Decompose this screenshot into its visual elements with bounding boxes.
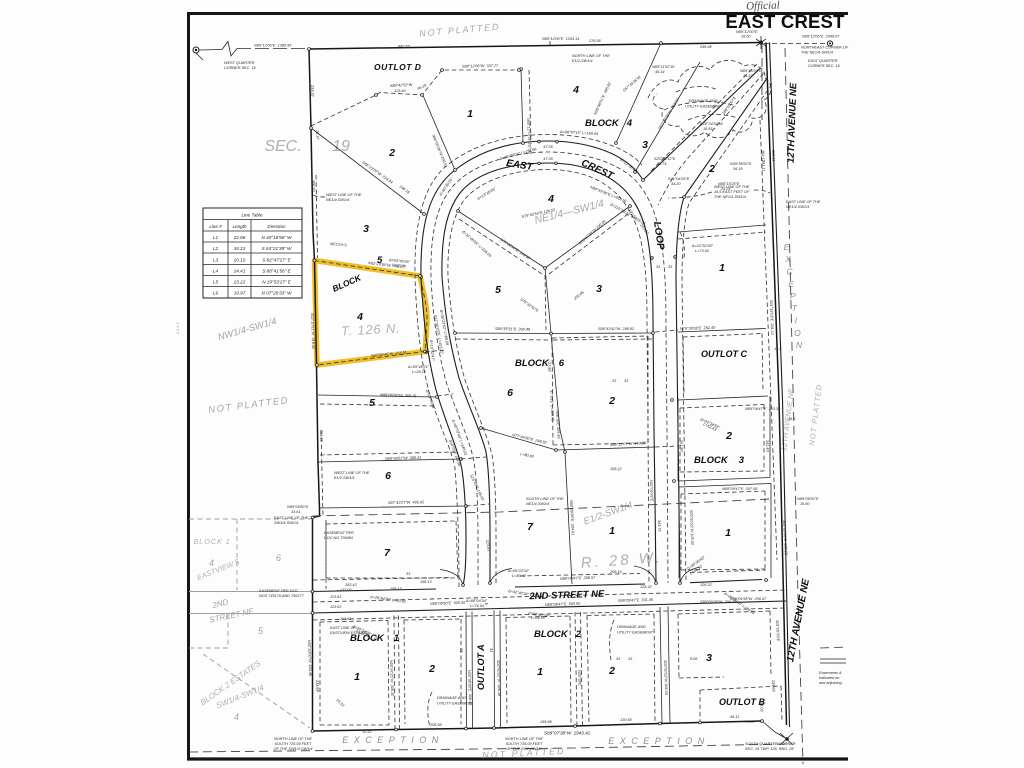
svg-text:6: 6 bbox=[276, 553, 281, 563]
svg-text:343.75: 343.75 bbox=[657, 520, 661, 533]
svg-text:Δ=12°52'40": Δ=12°52'40" bbox=[691, 244, 714, 248]
svg-text:EASEMENT PER DOC: EASEMENT PER DOC bbox=[259, 589, 298, 593]
svg-text:1: 1 bbox=[537, 666, 543, 678]
svg-text:Length: Length bbox=[232, 224, 246, 229]
svg-text:27.88: 27.88 bbox=[547, 361, 551, 373]
svg-text:BLOCK 1: BLOCK 1 bbox=[193, 537, 230, 546]
svg-text:4: 4 bbox=[234, 712, 239, 722]
svg-text:S 88°41'56" E: S 88°41'56" E bbox=[262, 269, 291, 274]
svg-text:134.03: 134.03 bbox=[759, 700, 764, 713]
svg-text:L=24.80: L=24.80 bbox=[531, 616, 546, 620]
svg-text:E: E bbox=[784, 242, 790, 252]
svg-text:E1/2-SW1/4: E1/2-SW1/4 bbox=[334, 476, 354, 480]
svg-text:N89°09'50"E: N89°09'50"E bbox=[797, 497, 819, 501]
svg-text:EXCEPTION: EXCEPTION bbox=[342, 735, 444, 745]
svg-text:L5: L5 bbox=[213, 280, 219, 285]
svg-text:CORNER SEC. 19: CORNER SEC. 19 bbox=[808, 64, 841, 68]
svg-text:N89°15'25"E: N89°15'25"E bbox=[718, 182, 740, 186]
svg-text:2: 2 bbox=[608, 665, 615, 677]
svg-text:DRAINAGE AND: DRAINAGE AND bbox=[437, 696, 466, 700]
svg-text:126.32: 126.32 bbox=[700, 583, 713, 587]
svg-text:2: 2 bbox=[725, 430, 732, 442]
svg-text:N89°12'06"E 2646.07: N89°12'06"E 2646.07 bbox=[802, 35, 840, 39]
svg-text:N89°09'47"E 207.08: N89°09'47"E 207.08 bbox=[722, 487, 758, 491]
svg-text:1: 1 bbox=[467, 108, 473, 120]
svg-text:20.10: 20.10 bbox=[233, 258, 246, 263]
svg-text:L6: L6 bbox=[213, 291, 219, 296]
svg-text:4: 4 bbox=[209, 558, 214, 568]
svg-text:16.5 EAST FEET OF: 16.5 EAST FEET OF bbox=[714, 190, 750, 194]
svg-text:22.86: 22.86 bbox=[233, 235, 246, 240]
svg-text:130.55: 130.55 bbox=[620, 718, 633, 722]
svg-text:EAST LINE OF THE: EAST LINE OF THE bbox=[786, 200, 821, 204]
svg-text:45.11: 45.11 bbox=[730, 715, 739, 719]
svg-text:44.20: 44.20 bbox=[671, 182, 681, 186]
svg-text:S89°12'06"W 337.77: S89°12'06"W 337.77 bbox=[462, 64, 499, 69]
svg-text:5: 5 bbox=[495, 284, 501, 296]
svg-text:198.13: 198.13 bbox=[420, 580, 433, 584]
svg-text:L3: L3 bbox=[213, 258, 219, 263]
svg-text:S20°25'12"E: S20°25'12"E bbox=[654, 157, 676, 161]
svg-text:Δ=09°48'21": Δ=09°48'21" bbox=[407, 365, 430, 369]
svg-text:241.43: 241.43 bbox=[765, 439, 769, 453]
svg-text:268.11: 268.11 bbox=[771, 149, 775, 161]
svg-text:21.45: 21.45 bbox=[367, 637, 378, 641]
svg-text:N89°12'06"E 1385.95: N89°12'06"E 1385.95 bbox=[254, 44, 292, 48]
svg-text:N89°12'00"E: N89°12'00"E bbox=[736, 30, 758, 34]
svg-text:EAST CREST: EAST CREST bbox=[725, 11, 845, 32]
svg-text:DRAINAGE AND: DRAINAGE AND bbox=[617, 625, 646, 629]
svg-text:16.2: 16.2 bbox=[774, 347, 782, 351]
svg-text:L=73.92: L=73.92 bbox=[695, 249, 710, 253]
svg-text:WEST QUARTER: WEST QUARTER bbox=[224, 61, 255, 65]
svg-text:N 40°18'56" W: N 40°18'56" W bbox=[262, 235, 293, 240]
svg-text:306.50: 306.50 bbox=[311, 180, 316, 193]
svg-text:N89°09'50"E: N89°09'50"E bbox=[287, 505, 309, 509]
svg-text:3: 3 bbox=[642, 139, 648, 151]
svg-text:T. 126 N.: T. 126 N. bbox=[341, 320, 401, 338]
svg-text:34.22: 34.22 bbox=[743, 74, 753, 78]
svg-text:1: 1 bbox=[609, 525, 615, 537]
svg-text:UTILITY EASEMENT: UTILITY EASEMENT bbox=[685, 105, 722, 109]
svg-text:70.37: 70.37 bbox=[315, 130, 320, 141]
svg-text:WEST LINE OF THE: WEST LINE OF THE bbox=[326, 193, 362, 197]
svg-text:19.97: 19.97 bbox=[234, 291, 246, 296]
svg-text:SEC. 19 TWP. 126, RNG. 28: SEC. 19 TWP. 126, RNG. 28 bbox=[745, 747, 794, 751]
svg-text:OUTLOT A: OUTLOT A bbox=[476, 644, 486, 690]
svg-text:296.98: 296.98 bbox=[699, 45, 713, 49]
svg-text:47.05: 47.05 bbox=[543, 145, 553, 149]
svg-text:129.40: 129.40 bbox=[394, 89, 407, 93]
svg-text:OF THE SW1/4-SW1/4: OF THE SW1/4-SW1/4 bbox=[274, 747, 313, 751]
svg-text:L=74.94: L=74.94 bbox=[470, 604, 484, 608]
svg-text:6: 6 bbox=[507, 387, 513, 399]
svg-text:Easements &: Easements & bbox=[819, 671, 842, 675]
svg-text:4: 4 bbox=[547, 193, 554, 205]
svg-text:N 19°53'27" E: N 19°53'27" E bbox=[262, 280, 292, 285]
svg-text:840.55: 840.55 bbox=[398, 45, 411, 49]
svg-text:234.69: 234.69 bbox=[315, 679, 319, 693]
svg-text:SOUTH LINE OF THE: SOUTH LINE OF THE bbox=[526, 497, 564, 501]
svg-text:THE NE1/4-SW1/4: THE NE1/4-SW1/4 bbox=[714, 195, 746, 199]
svg-text:251.80: 251.80 bbox=[679, 439, 683, 453]
svg-text:3: 3 bbox=[363, 223, 369, 235]
svg-text:OUTLOT B: OUTLOT B bbox=[719, 697, 765, 707]
svg-text:754.48: 754.48 bbox=[319, 430, 323, 443]
svg-text:UTILITY EASEMENT: UTILITY EASEMENT bbox=[617, 631, 654, 635]
svg-text:S89°07'38"W 1943.42: S89°07'38"W 1943.42 bbox=[544, 731, 591, 736]
svg-text:23.22: 23.22 bbox=[233, 280, 246, 285]
svg-text:EAST LINE OF THE: EAST LINE OF THE bbox=[274, 516, 309, 520]
svg-text:34.21: 34.21 bbox=[234, 246, 246, 251]
svg-text:DOC NO 709484: DOC NO 709484 bbox=[324, 536, 353, 540]
svg-text:3: 3 bbox=[596, 283, 602, 295]
svg-text:18.55: 18.55 bbox=[703, 127, 713, 131]
svg-text:113.63: 113.63 bbox=[330, 605, 342, 609]
svg-text:N01°05'33"E: N01°05'33"E bbox=[649, 480, 654, 502]
svg-text:NORTH LINE OF THE: NORTH LINE OF THE bbox=[274, 737, 312, 741]
svg-text:195.98: 195.98 bbox=[540, 720, 553, 724]
svg-text:N89°46'34"W: N89°46'34"W bbox=[740, 69, 763, 73]
svg-text:Line #: Line # bbox=[209, 224, 222, 229]
svg-text:NORTH LINE OF THE: NORTH LINE OF THE bbox=[505, 737, 543, 741]
svg-text:NE1/4-SW1/4: NE1/4-SW1/4 bbox=[526, 502, 549, 506]
svg-text:70.03: 70.03 bbox=[745, 720, 755, 724]
svg-text:113.61: 113.61 bbox=[340, 617, 351, 621]
svg-text:NORTHEAST CORNER OF: NORTHEAST CORNER OF bbox=[801, 46, 849, 50]
svg-text:E: E bbox=[788, 279, 794, 289]
svg-text:L4: L4 bbox=[213, 269, 219, 274]
svg-text:S89°43'42"W 298.82: S89°43'42"W 298.82 bbox=[598, 327, 635, 331]
svg-text:276.58: 276.58 bbox=[588, 39, 602, 43]
svg-text:34.74: 34.74 bbox=[657, 162, 667, 166]
svg-text:N39°58'52"E: N39°58'52"E bbox=[730, 162, 752, 166]
svg-text:108.37: 108.37 bbox=[610, 467, 623, 471]
svg-text:2: 2 bbox=[388, 147, 395, 159]
svg-text:N: N bbox=[796, 340, 803, 350]
svg-text:16.50: 16.50 bbox=[741, 35, 751, 39]
svg-text:CORNER SEC. 19: CORNER SEC. 19 bbox=[224, 66, 257, 70]
svg-text:126.32: 126.32 bbox=[640, 585, 653, 589]
svg-text:EXCEPTION: EXCEPTION bbox=[608, 736, 710, 746]
svg-text:234.69: 234.69 bbox=[771, 679, 776, 693]
svg-text:208.16: 208.16 bbox=[609, 570, 623, 574]
svg-text:33.61: 33.61 bbox=[291, 510, 301, 514]
svg-text:EASEMENT PER: EASEMENT PER bbox=[324, 531, 354, 535]
svg-text:3: 3 bbox=[706, 652, 712, 664]
svg-text:16.50: 16.50 bbox=[800, 502, 810, 506]
svg-text:N89°09'47"E 253.38: N89°09'47"E 253.38 bbox=[745, 407, 781, 411]
svg-text:NE1/4-SW1/4: NE1/4-SW1/4 bbox=[786, 205, 809, 209]
svg-text:SEC.: SEC. bbox=[264, 138, 301, 155]
svg-text:SOUTH 726.09 FEET: SOUTH 726.09 FEET bbox=[275, 742, 312, 746]
svg-text:S89°09'38"W 206.47: S89°09'38"W 206.47 bbox=[700, 600, 737, 604]
svg-text:S89°35'31"E 260.48: S89°35'31"E 260.48 bbox=[495, 327, 531, 332]
svg-text:O: O bbox=[794, 328, 801, 338]
svg-text:2: 2 bbox=[608, 395, 615, 407]
svg-text:10.32: 10.32 bbox=[362, 730, 372, 734]
svg-text:L1: L1 bbox=[213, 235, 219, 240]
svg-text:4: 4 bbox=[572, 84, 579, 96]
svg-text:T: T bbox=[792, 303, 798, 313]
svg-text:4: 4 bbox=[356, 311, 363, 323]
svg-text:L=26.10: L=26.10 bbox=[412, 370, 427, 374]
svg-text:N00°39'E: N00°39'E bbox=[577, 670, 582, 687]
svg-text:16.5: 16.5 bbox=[788, 417, 796, 421]
svg-text:NORTH LINE OF THE: NORTH LINE OF THE bbox=[572, 54, 610, 58]
svg-text:L=80.42: L=80.42 bbox=[512, 574, 527, 578]
svg-text:OUTLOT D: OUTLOT D bbox=[374, 62, 421, 72]
svg-text:←=33.00: ←=33.00 bbox=[336, 588, 352, 592]
svg-text:NE1/4-SW1/4: NE1/4-SW1/4 bbox=[326, 198, 349, 202]
svg-text:SOUTH 726.09 FEET: SOUTH 726.09 FEET bbox=[506, 742, 543, 746]
svg-text:Δ=88°04'34": Δ=88°04'34" bbox=[465, 599, 488, 603]
svg-text:Line Table: Line Table bbox=[241, 213, 262, 218]
svg-text:E1/2-SW1/4: E1/2-SW1/4 bbox=[572, 59, 592, 63]
svg-text:N89°12'00"E 1293.14: N89°12'00"E 1293.14 bbox=[542, 37, 579, 41]
svg-text:198.13: 198.13 bbox=[390, 587, 403, 591]
svg-text:5: 5 bbox=[369, 397, 375, 409]
svg-text:S 82°47'27" E: S 82°47'27" E bbox=[262, 258, 291, 263]
svg-text:2: 2 bbox=[708, 163, 715, 175]
svg-text:233.32: 233.32 bbox=[310, 84, 315, 98]
svg-text:23.24: 23.24 bbox=[720, 187, 731, 191]
svg-text:183.42: 183.42 bbox=[345, 583, 358, 587]
svg-text:S 64°21'39" W: S 64°21'39" W bbox=[262, 246, 292, 251]
svg-text:5: 5 bbox=[377, 255, 383, 266]
svg-text:DRAINAGE AND: DRAINAGE AND bbox=[689, 99, 718, 103]
svg-text:indicated an: indicated an bbox=[819, 676, 839, 680]
svg-text:36.18: 36.18 bbox=[733, 167, 743, 171]
svg-text:OUTLOT C: OUTLOT C bbox=[701, 349, 747, 359]
svg-text:N25°34'34"W: N25°34'34"W bbox=[700, 122, 723, 126]
svg-text:47.05: 47.05 bbox=[543, 157, 553, 161]
svg-text:N89°11'52"W: N89°11'52"W bbox=[652, 65, 675, 69]
svg-text:S87°43'27"W 495.65: S87°43'27"W 495.65 bbox=[388, 500, 425, 505]
svg-text:1: 1 bbox=[719, 262, 725, 274]
svg-text:WEST LINE OF THE: WEST LINE OF THE bbox=[334, 471, 370, 475]
svg-text:2: 2 bbox=[428, 663, 435, 675]
svg-text:THE NE1/4-SW1/4: THE NE1/4-SW1/4 bbox=[801, 51, 833, 55]
svg-text:45.14: 45.14 bbox=[655, 70, 665, 74]
svg-text:1: 1 bbox=[354, 671, 360, 683]
svg-text:113.63: 113.63 bbox=[330, 595, 342, 599]
svg-text:8.06: 8.06 bbox=[690, 657, 698, 661]
svg-text:Direction: Direction bbox=[267, 224, 286, 229]
svg-text:EAST QUARTER: EAST QUARTER bbox=[808, 59, 838, 63]
svg-text:1: 1 bbox=[725, 527, 731, 539]
svg-text:N 07°20'33" W: N 07°20'33" W bbox=[262, 291, 293, 296]
svg-text:281.11: 281.11 bbox=[761, 159, 765, 171]
svg-text:NOS 745176 AND 750277: NOS 745176 AND 750277 bbox=[259, 594, 304, 598]
svg-text:OF THE E1/2-SW1/4: OF THE E1/2-SW1/4 bbox=[506, 747, 541, 751]
svg-text:L2: L2 bbox=[213, 246, 219, 251]
svg-text:2.2.2.2: 2.2.2.2 bbox=[176, 322, 180, 335]
svg-text:6: 6 bbox=[385, 470, 391, 482]
svg-text:and adjoining: and adjoining bbox=[819, 681, 842, 685]
svg-text:Δ=09°24'34": Δ=09°24'34" bbox=[507, 569, 530, 573]
svg-text:SW1/4-SW1/4: SW1/4-SW1/4 bbox=[274, 521, 298, 525]
svg-text:S41°04'26"E: S41°04'26"E bbox=[668, 177, 690, 181]
svg-text:208.99: 208.99 bbox=[429, 723, 443, 727]
svg-text:24.41: 24.41 bbox=[233, 269, 246, 274]
